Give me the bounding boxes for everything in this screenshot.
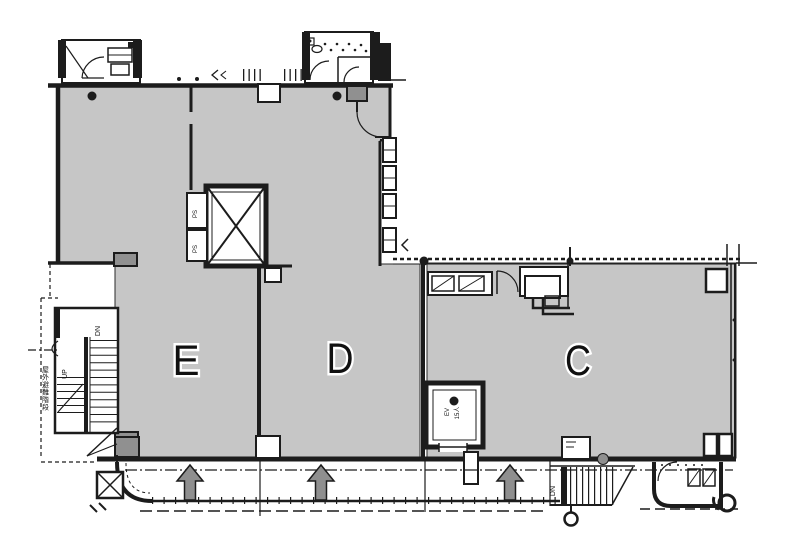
service-room-bottom-right [654,462,735,511]
toilet-block-middle [302,32,380,83]
exterior-stair-bottom: DN [550,466,635,526]
elevator-capacity-label: 15人 [454,407,461,420]
evacuation-stair-label: 屋外避難階段 [42,366,50,412]
floor-box [704,434,717,456]
stairwell-left: UP DN 屋外避難階段 [28,264,118,462]
revision-mark [402,239,408,251]
floor-box [719,434,732,456]
stair-up-label: UP [62,369,69,379]
stair-stringer [84,337,88,433]
column [115,437,139,457]
floor-plan-canvas: PS PS EV 15人 [0,0,787,556]
stair-down-label: DN [95,326,102,336]
corner-equipment-box [706,269,727,292]
floor-plan-svg: PS PS EV 15人 [0,0,787,556]
section-mark [565,513,578,526]
unit-label-e: E [173,337,200,385]
unit-label-c: C [565,337,591,385]
pipe-shaft-label-1: PS [193,210,199,218]
column [114,253,137,266]
exterior-stair-down-label: DN [550,486,557,496]
wall-niche [258,84,280,102]
unit-label-d: D [327,335,354,383]
floor-box [562,437,590,459]
elevator-pit-box [464,452,478,484]
elevator-label: EV [445,408,451,416]
pipe-shaft-label-2: PS [193,245,199,253]
door-swing-arc [658,462,677,481]
pipe-shafts: PS PS [187,193,207,261]
toilet-block-left [58,40,142,83]
column [347,86,367,101]
wall-end-box [256,436,280,458]
elevator: EV 15人 [426,383,483,484]
